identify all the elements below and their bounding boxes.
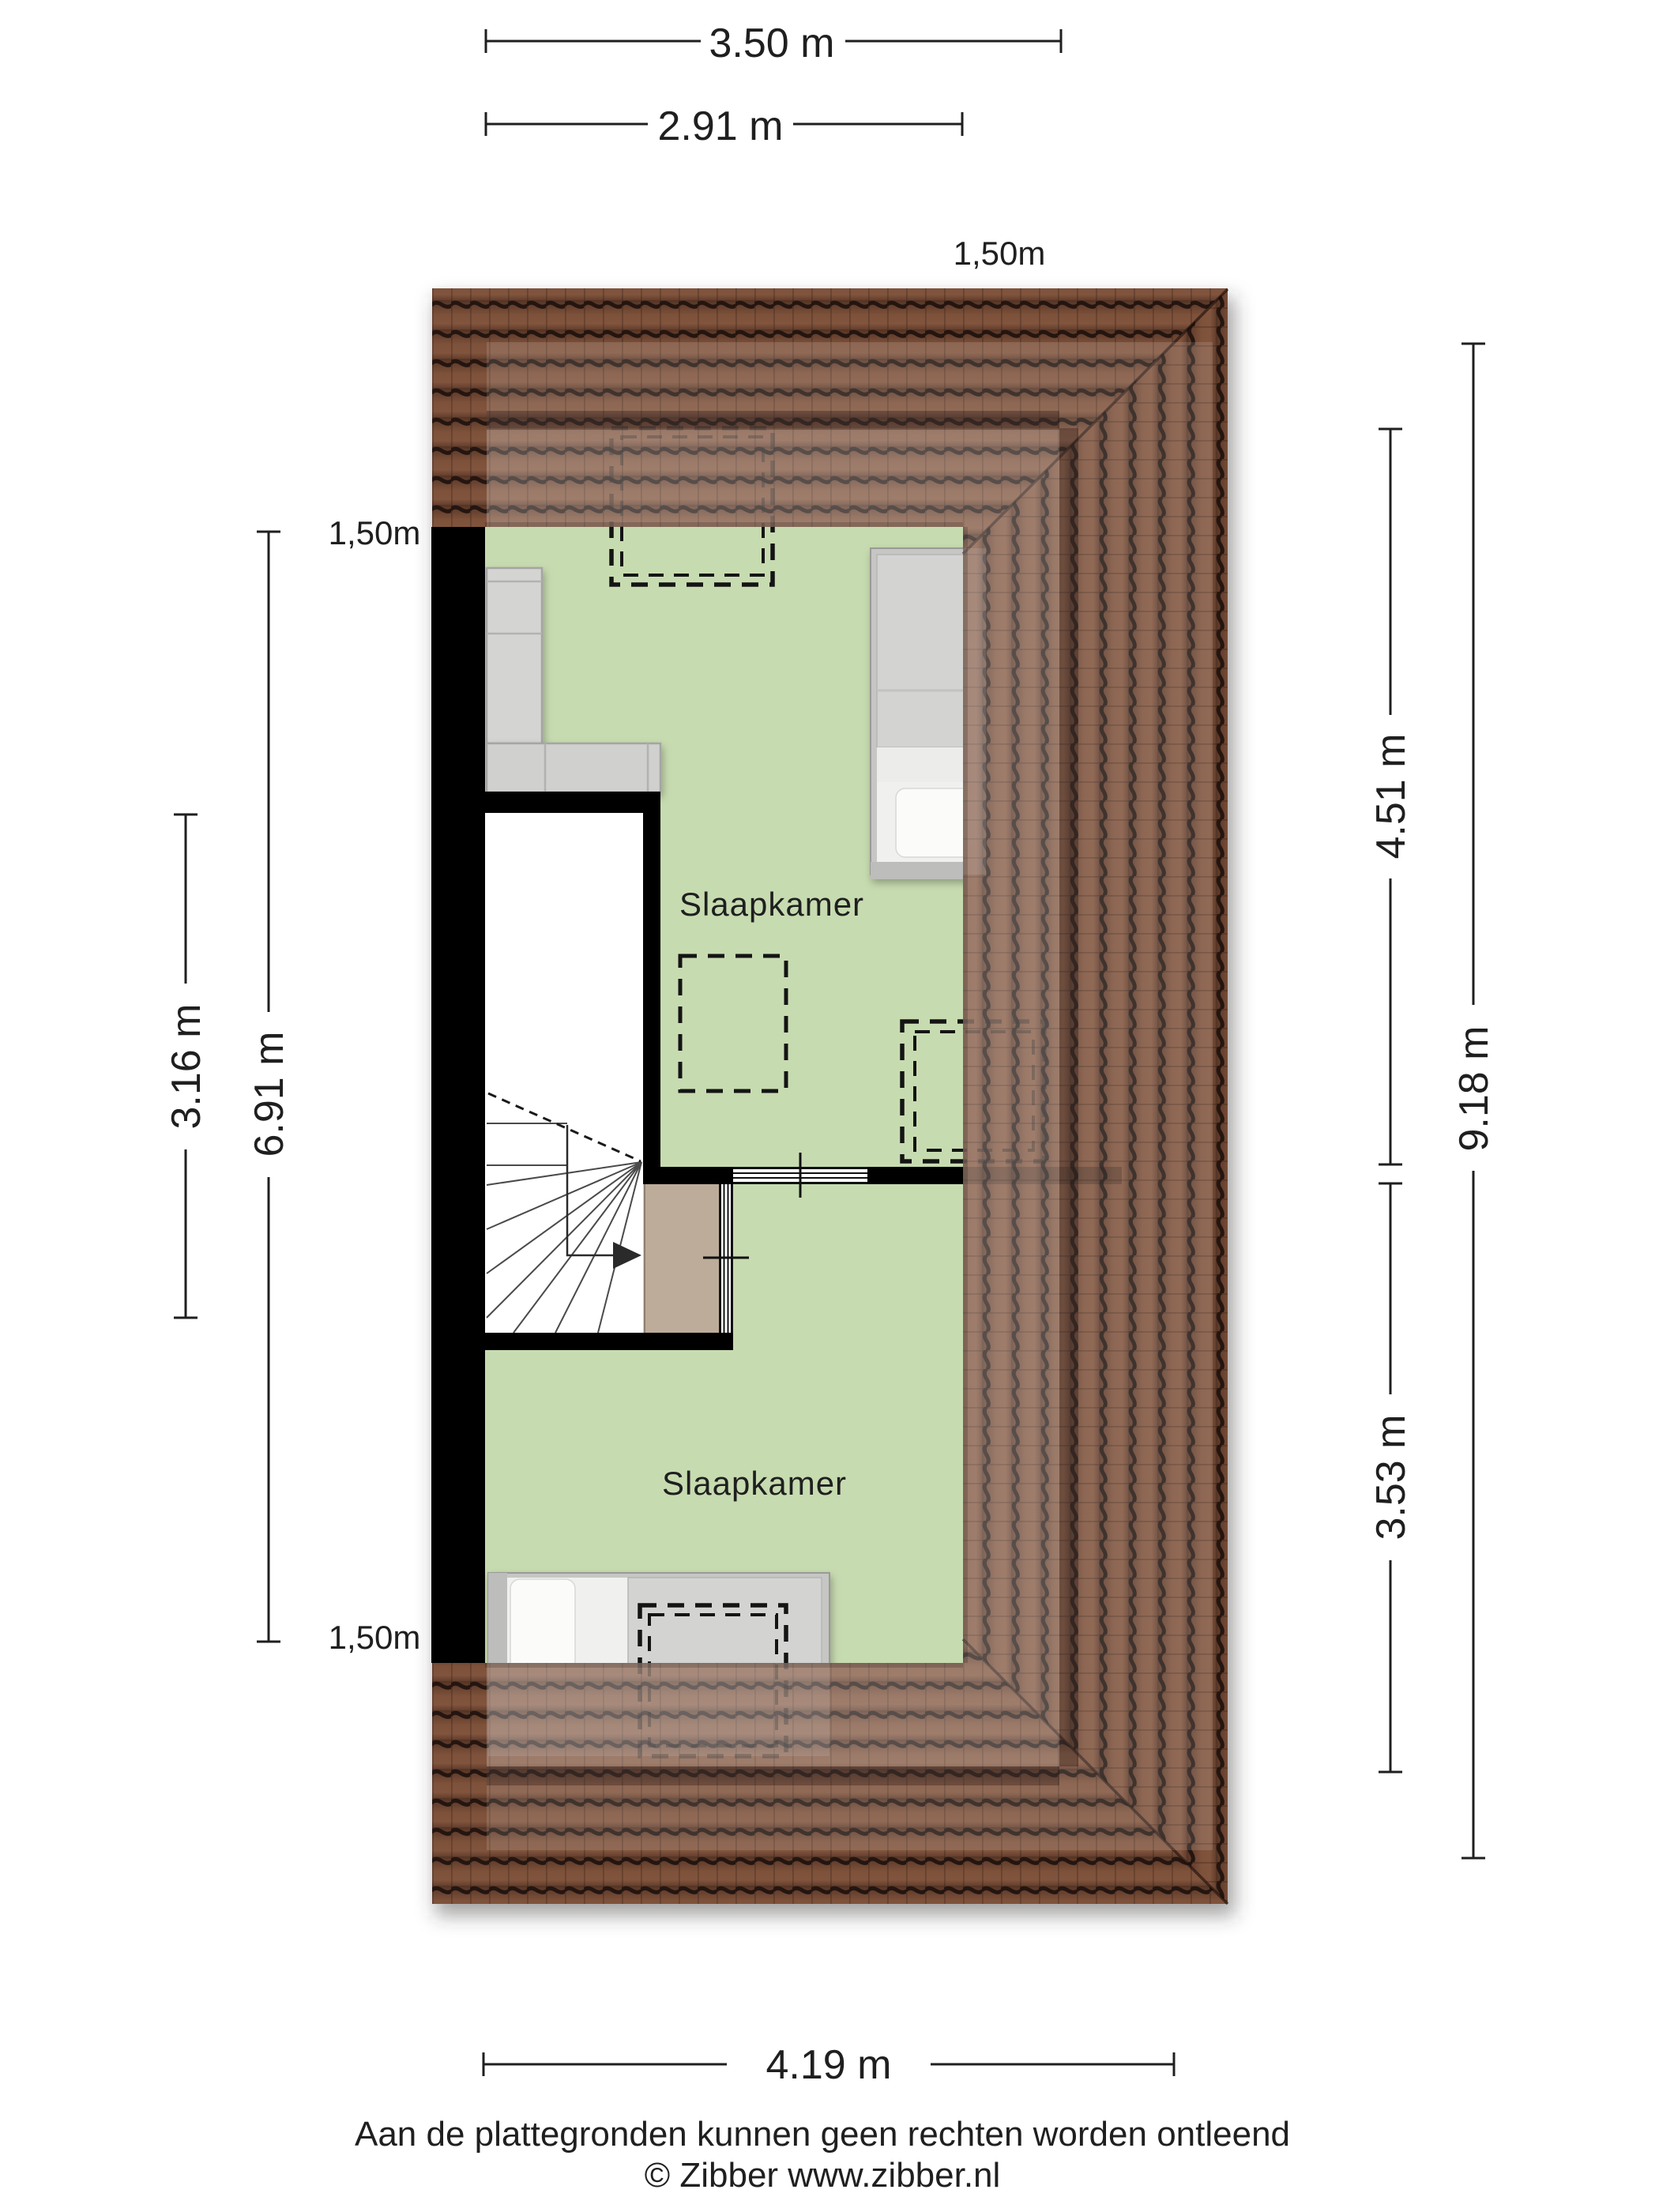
svg-text:9.18 m: 9.18 m [1451, 1026, 1497, 1152]
svg-text:Slaapkamer: Slaapkamer [679, 886, 864, 923]
svg-text:4.51 m: 4.51 m [1368, 734, 1414, 860]
svg-text:3.16 m: 3.16 m [164, 1004, 209, 1130]
svg-text:3.50 m: 3.50 m [709, 21, 835, 66]
svg-text:6.91 m: 6.91 m [246, 1032, 292, 1157]
svg-text:1,50m: 1,50m [329, 1619, 421, 1656]
svg-text:1,50m: 1,50m [954, 235, 1046, 272]
svg-text:1,50m: 1,50m [329, 514, 421, 551]
svg-text:Slaapkamer: Slaapkamer [662, 1465, 847, 1502]
svg-text:2.91 m: 2.91 m [658, 103, 784, 149]
svg-text:4.19 m: 4.19 m [766, 2042, 892, 2088]
svg-text:Aan de plattegronden kunnen ge: Aan de plattegronden kunnen geen rechten… [355, 2115, 1290, 2154]
svg-text:© Zibber www.zibber.nl: © Zibber www.zibber.nl [645, 2156, 1001, 2195]
svg-text:3.53 m: 3.53 m [1368, 1415, 1414, 1540]
